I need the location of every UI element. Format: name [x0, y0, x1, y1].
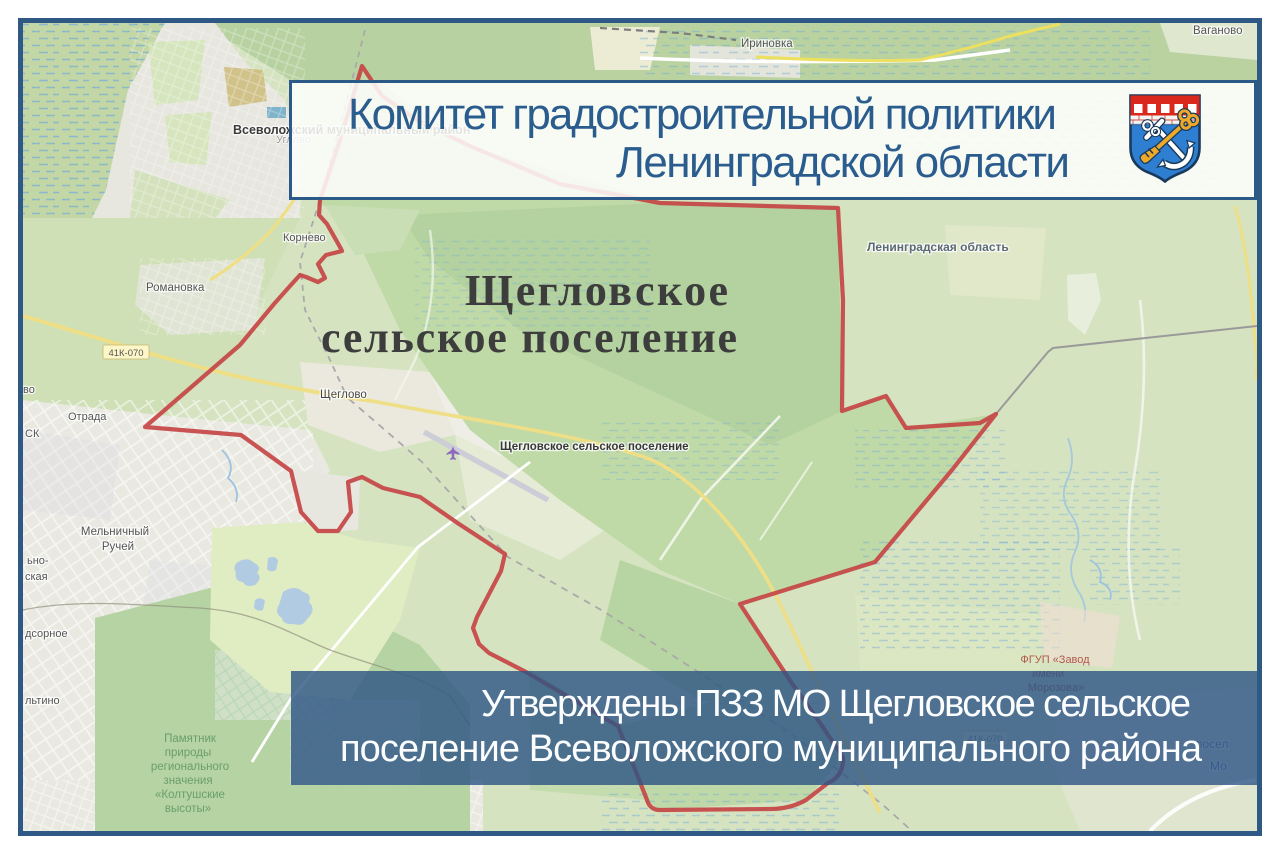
svg-text:поселение Всеволожского муници: поселение Всеволожского муниципального р…: [340, 728, 1203, 770]
svg-text:Комитет градостроительной поли: Комитет градостроительной политики: [348, 90, 1057, 139]
svg-text:Ленинградской области: Ленинградской области: [616, 138, 1070, 187]
svg-text:Утверждены ПЗЗ МО Щегловское с: Утверждены ПЗЗ МО Щегловское сельское: [481, 683, 1191, 725]
